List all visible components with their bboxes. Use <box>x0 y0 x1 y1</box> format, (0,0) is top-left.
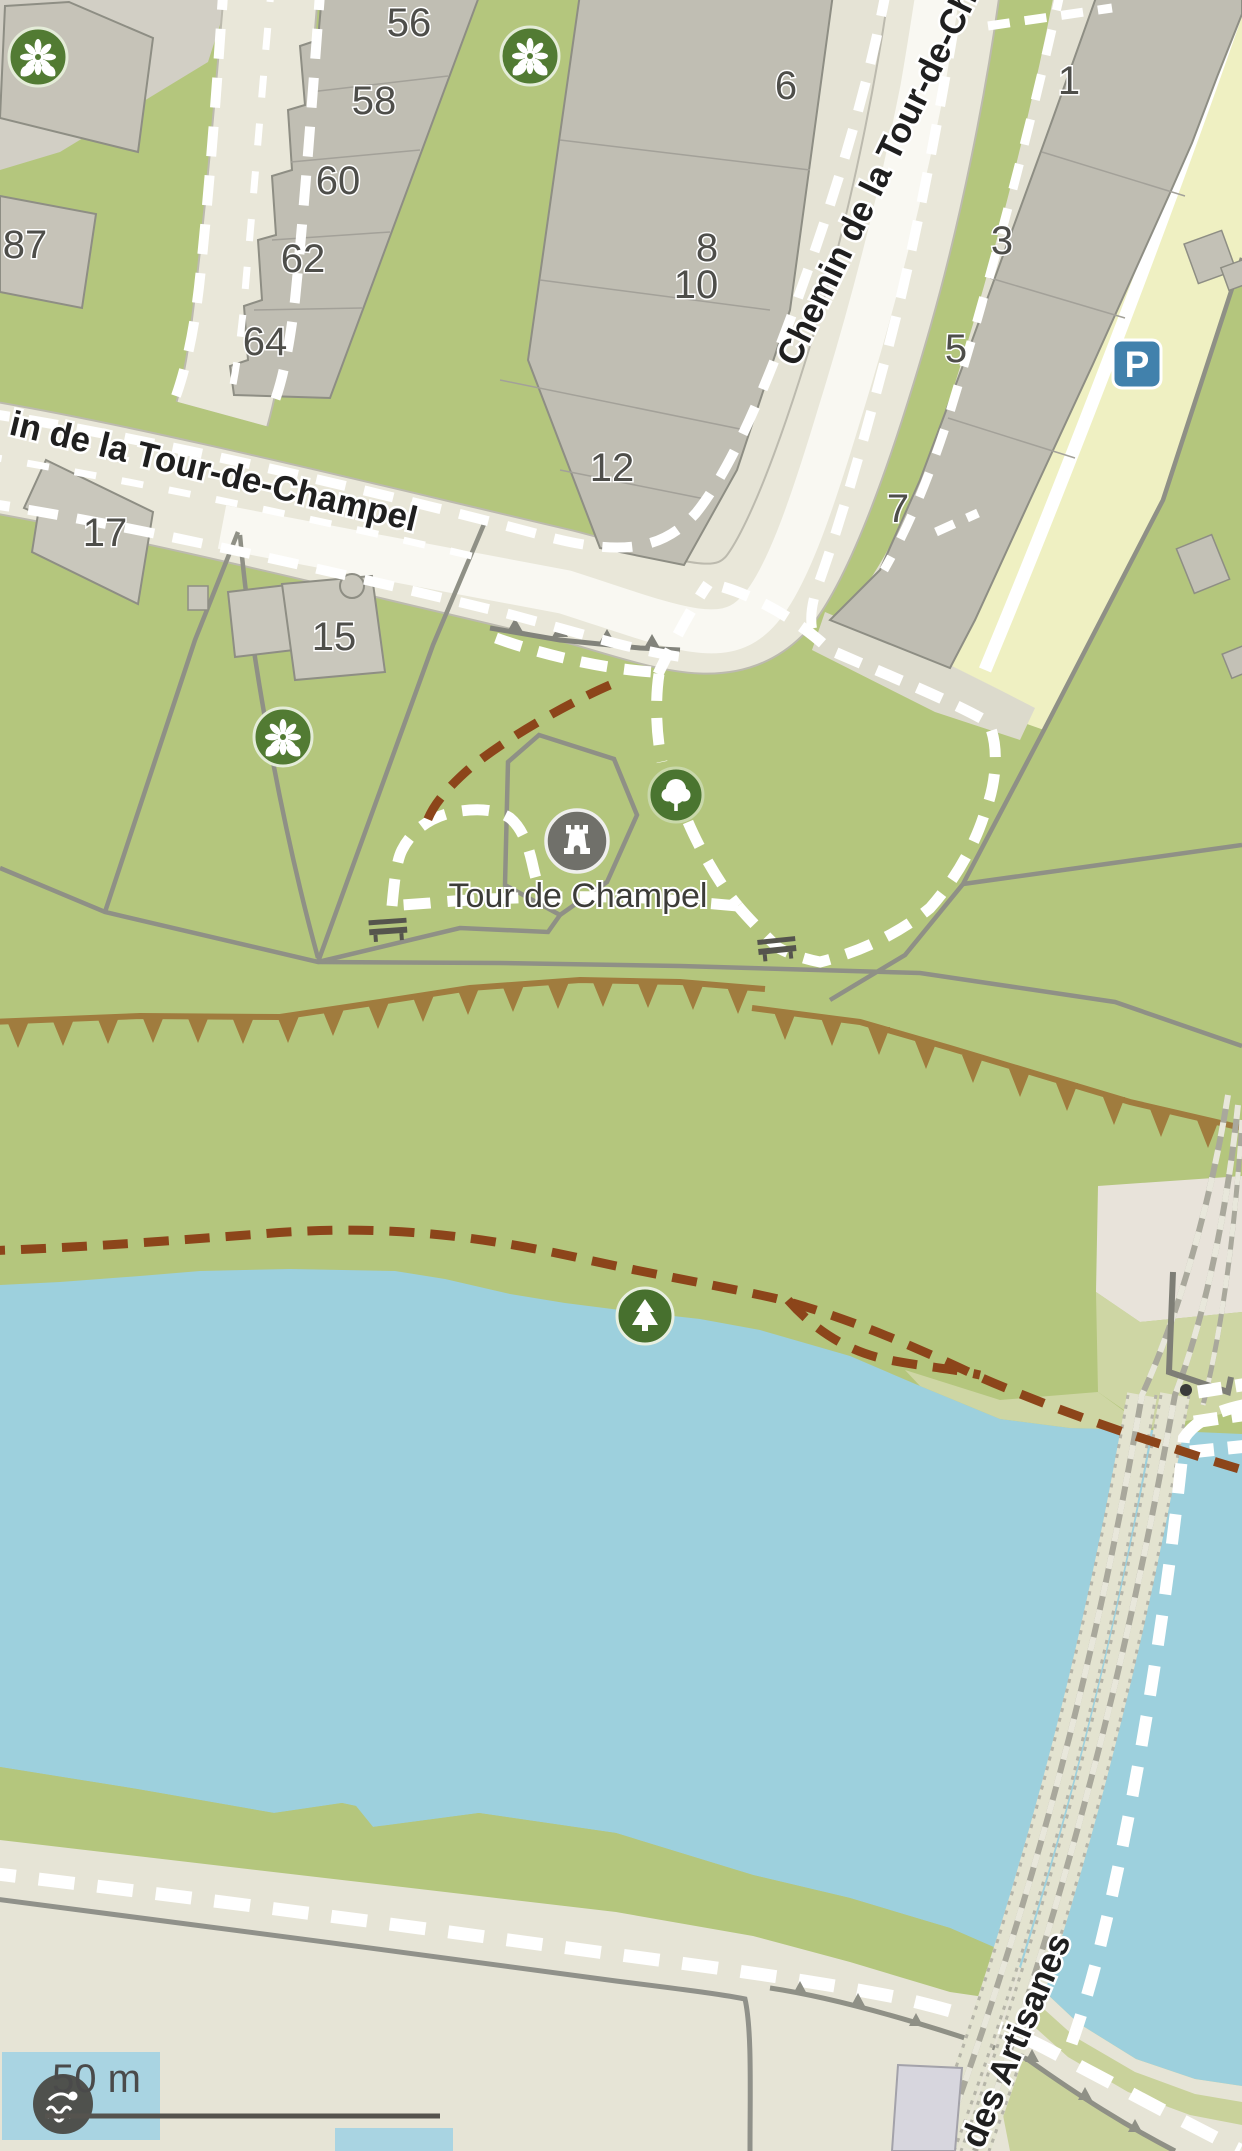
svg-text:12: 12 <box>590 446 635 490</box>
svg-text:58: 58 <box>352 79 397 123</box>
svg-text:3: 3 <box>991 219 1013 263</box>
svg-text:6: 6 <box>775 64 797 108</box>
svg-text:10: 10 <box>674 263 719 307</box>
svg-text:5: 5 <box>945 327 967 371</box>
svg-text:64: 64 <box>243 320 288 364</box>
svg-text:7: 7 <box>887 487 909 531</box>
svg-text:Tour de Champel: Tour de Champel <box>449 877 708 915</box>
svg-text:56: 56 <box>387 1 432 45</box>
svg-text:17: 17 <box>83 511 128 555</box>
svg-text:1: 1 <box>1058 59 1080 103</box>
svg-text:50 m: 50 m <box>52 2057 141 2101</box>
svg-text:62: 62 <box>281 237 326 281</box>
svg-text:87: 87 <box>3 223 48 267</box>
svg-text:60: 60 <box>316 159 361 203</box>
svg-text:15: 15 <box>312 615 357 659</box>
svg-text:P: P <box>1125 344 1150 385</box>
